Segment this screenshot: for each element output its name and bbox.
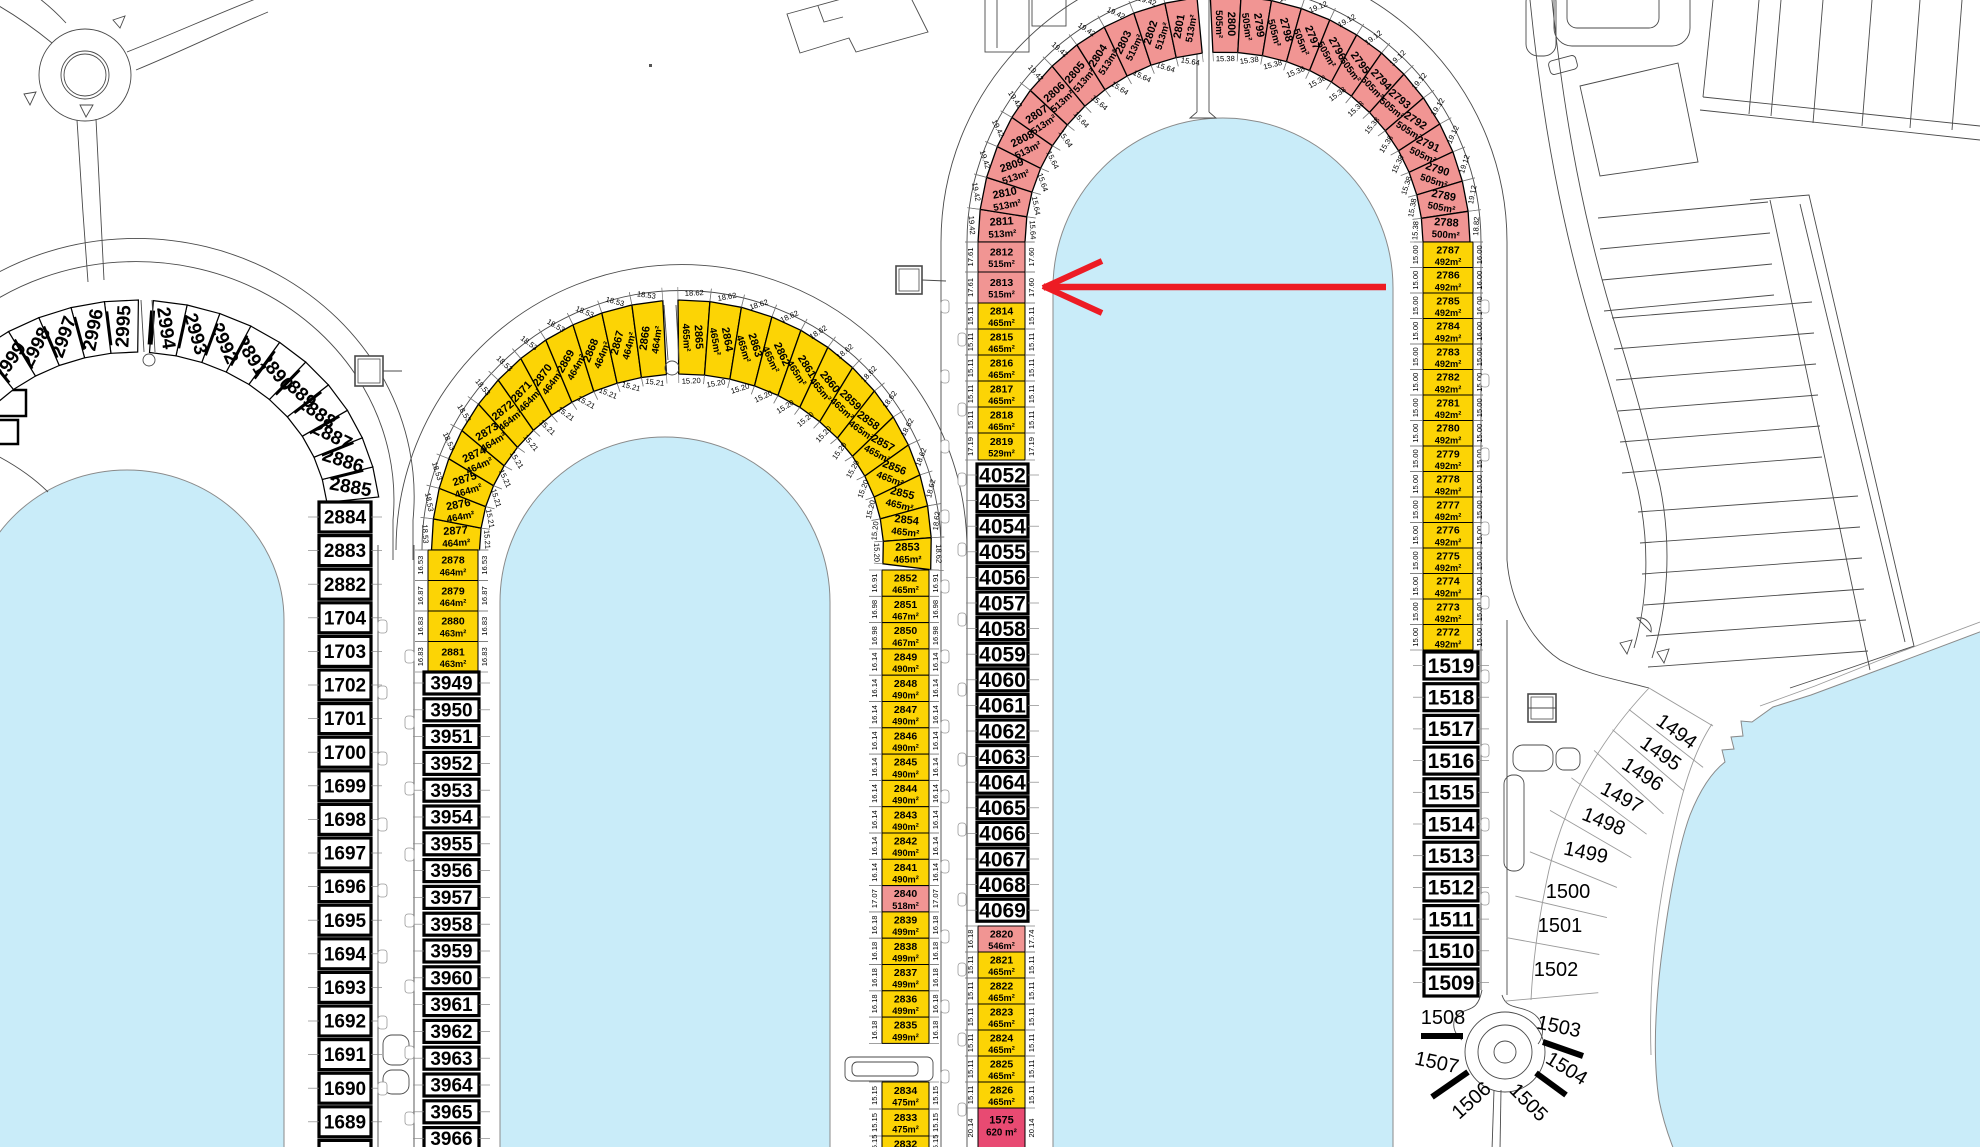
svg-text:492m²: 492m² <box>1435 282 1462 292</box>
svg-text:463m²: 463m² <box>440 659 467 669</box>
svg-text:467m²: 467m² <box>892 638 919 648</box>
svg-text:16.83: 16.83 <box>480 617 489 636</box>
svg-text:1575: 1575 <box>989 1115 1013 1127</box>
svg-text:1508: 1508 <box>1421 1007 1466 1029</box>
svg-text:3965: 3965 <box>430 1102 473 1123</box>
svg-text:463m²: 463m² <box>440 628 467 638</box>
svg-text:16.98: 16.98 <box>931 626 940 645</box>
svg-text:2774: 2774 <box>1436 576 1460 588</box>
svg-text:2842: 2842 <box>894 836 918 848</box>
svg-text:492m²: 492m² <box>1435 333 1462 343</box>
svg-text:15.00: 15.00 <box>1475 551 1484 570</box>
svg-text:2843: 2843 <box>894 809 918 821</box>
svg-text:15.11: 15.11 <box>966 1008 975 1026</box>
svg-text:4058: 4058 <box>979 618 1026 641</box>
svg-text:16.14: 16.14 <box>870 652 879 671</box>
svg-text:15.11: 15.11 <box>1027 333 1036 351</box>
svg-text:16.83: 16.83 <box>480 647 489 666</box>
svg-text:2832: 2832 <box>894 1139 918 1147</box>
svg-text:15.11: 15.11 <box>1027 411 1036 429</box>
svg-text:465m²: 465m² <box>988 370 1015 380</box>
svg-text:1704: 1704 <box>324 608 367 629</box>
svg-text:3956: 3956 <box>430 861 472 882</box>
svg-text:2865: 2865 <box>692 324 705 349</box>
svg-text:16.14: 16.14 <box>931 679 940 698</box>
svg-text:15.00: 15.00 <box>1411 373 1420 392</box>
svg-text:2880: 2880 <box>441 616 465 628</box>
svg-text:465m²: 465m² <box>892 585 919 595</box>
svg-text:490m²: 490m² <box>892 875 919 885</box>
svg-text:1695: 1695 <box>324 911 367 932</box>
svg-text:4057: 4057 <box>979 592 1026 615</box>
svg-text:15.00: 15.00 <box>1411 449 1420 468</box>
svg-text:513m²: 513m² <box>988 228 1017 241</box>
svg-text:15.15: 15.15 <box>870 1134 879 1147</box>
svg-text:2882: 2882 <box>324 575 366 596</box>
svg-text:16.14: 16.14 <box>931 705 940 724</box>
svg-text:3962: 3962 <box>430 1022 472 1043</box>
svg-text:2995: 2995 <box>112 304 135 348</box>
svg-text:16.18: 16.18 <box>870 942 879 961</box>
svg-text:16.14: 16.14 <box>931 837 940 856</box>
svg-text:15.11: 15.11 <box>966 956 975 974</box>
svg-text:2779: 2779 <box>1436 448 1460 460</box>
svg-text:16.18: 16.18 <box>870 968 879 987</box>
svg-text:15.00: 15.00 <box>1475 577 1484 596</box>
svg-text:2819: 2819 <box>990 436 1014 448</box>
svg-text:17.60: 17.60 <box>1027 247 1036 266</box>
svg-text:16.14: 16.14 <box>870 810 879 829</box>
svg-text:15.00: 15.00 <box>1475 398 1484 417</box>
svg-text:2788: 2788 <box>1434 216 1459 230</box>
svg-text:15.00: 15.00 <box>1411 347 1420 366</box>
svg-text:18.82: 18.82 <box>1471 216 1481 236</box>
svg-text:16.18: 16.18 <box>931 968 940 987</box>
svg-text:1512: 1512 <box>1428 877 1475 900</box>
svg-text:465m²: 465m² <box>988 1097 1015 1107</box>
svg-text:18.62: 18.62 <box>685 288 704 298</box>
svg-text:3966: 3966 <box>430 1129 472 1147</box>
svg-text:465m²: 465m² <box>988 396 1015 406</box>
svg-text:2821: 2821 <box>990 955 1014 967</box>
svg-text:2818: 2818 <box>990 410 1014 422</box>
svg-text:15.00: 15.00 <box>1411 628 1420 647</box>
svg-text:16.91: 16.91 <box>931 574 940 593</box>
svg-text:16.14: 16.14 <box>931 758 940 777</box>
svg-text:15.00: 15.00 <box>1411 296 1420 315</box>
svg-text:467m²: 467m² <box>892 612 919 622</box>
svg-text:464m²: 464m² <box>440 598 467 608</box>
svg-text:16.98: 16.98 <box>931 600 940 619</box>
svg-text:15.00: 15.00 <box>1475 500 1484 519</box>
svg-text:1515: 1515 <box>1428 782 1475 805</box>
svg-text:2836: 2836 <box>894 993 918 1005</box>
svg-text:490m²: 490m² <box>892 796 919 806</box>
svg-text:505m²: 505m² <box>1213 10 1224 39</box>
svg-text:2784: 2784 <box>1436 321 1460 333</box>
svg-text:2841: 2841 <box>894 862 918 874</box>
svg-text:16.98: 16.98 <box>870 626 879 645</box>
svg-text:2847: 2847 <box>894 704 918 716</box>
svg-text:2883: 2883 <box>324 541 366 562</box>
svg-text:1518: 1518 <box>1428 687 1475 710</box>
svg-text:16.18: 16.18 <box>870 915 879 934</box>
svg-text:17.60: 17.60 <box>1027 278 1036 297</box>
svg-text:1702: 1702 <box>324 676 366 697</box>
svg-text:16.14: 16.14 <box>931 810 940 829</box>
svg-text:4065: 4065 <box>979 797 1026 820</box>
svg-text:3958: 3958 <box>430 915 472 936</box>
svg-text:2823: 2823 <box>990 1007 1014 1019</box>
svg-text:15.00: 15.00 <box>1411 602 1420 621</box>
svg-text:499m²: 499m² <box>892 1006 919 1016</box>
svg-text:2777: 2777 <box>1436 499 1460 511</box>
svg-text:3955: 3955 <box>430 834 473 855</box>
svg-text:464m²: 464m² <box>440 567 467 577</box>
svg-text:2884: 2884 <box>324 508 367 529</box>
svg-text:2773: 2773 <box>1436 601 1460 613</box>
svg-text:490m²: 490m² <box>892 769 919 779</box>
svg-text:518m²: 518m² <box>892 901 919 911</box>
svg-text:2775: 2775 <box>1436 550 1460 562</box>
svg-text:17.19: 17.19 <box>966 437 975 456</box>
svg-text:15.00: 15.00 <box>1411 551 1420 570</box>
svg-text:16.53: 16.53 <box>416 556 425 575</box>
svg-text:465m²: 465m² <box>988 1045 1015 1055</box>
svg-text:546m²: 546m² <box>988 941 1015 951</box>
svg-text:2815: 2815 <box>990 332 1014 344</box>
svg-text:15.15: 15.15 <box>870 1086 879 1105</box>
svg-text:1511: 1511 <box>1428 908 1474 931</box>
svg-text:15.00: 15.00 <box>1411 577 1420 596</box>
svg-text:2851: 2851 <box>894 599 918 611</box>
svg-text:15.11: 15.11 <box>966 1034 975 1052</box>
svg-text:20.14: 20.14 <box>1027 1118 1036 1137</box>
svg-text:4052: 4052 <box>979 464 1026 487</box>
svg-text:465m²: 465m² <box>988 1071 1015 1081</box>
svg-text:465m²: 465m² <box>988 422 1015 432</box>
svg-text:499m²: 499m² <box>892 927 919 937</box>
svg-text:16.00: 16.00 <box>1475 322 1484 341</box>
svg-text:1701: 1701 <box>324 709 367 730</box>
svg-text:18.53: 18.53 <box>420 524 430 544</box>
svg-text:16.00: 16.00 <box>1475 245 1484 264</box>
svg-text:492m²: 492m² <box>1435 563 1462 573</box>
svg-text:15.11: 15.11 <box>1027 1008 1036 1026</box>
svg-text:490m²: 490m² <box>892 848 919 858</box>
svg-text:16.14: 16.14 <box>870 705 879 724</box>
svg-text:492m²: 492m² <box>1435 537 1462 547</box>
svg-text:1696: 1696 <box>324 877 366 898</box>
svg-text:492m²: 492m² <box>1435 639 1462 649</box>
svg-text:3959: 3959 <box>430 942 472 963</box>
svg-text:16.14: 16.14 <box>931 863 940 882</box>
svg-text:492m²: 492m² <box>1435 435 1462 445</box>
svg-text:1519: 1519 <box>1428 655 1475 678</box>
svg-text:2850: 2850 <box>894 625 918 637</box>
svg-text:3964: 3964 <box>430 1076 473 1097</box>
svg-text:3951: 3951 <box>430 727 473 748</box>
svg-text:2783: 2783 <box>1436 346 1460 358</box>
svg-text:2838: 2838 <box>894 941 918 953</box>
svg-text:17.61: 17.61 <box>966 278 975 297</box>
svg-text:15.11: 15.11 <box>966 359 975 377</box>
svg-text:15.00: 15.00 <box>1475 475 1484 494</box>
svg-text:1502: 1502 <box>1534 959 1579 981</box>
svg-text:2877: 2877 <box>443 524 468 538</box>
svg-text:16.91: 16.91 <box>870 574 879 593</box>
svg-text:465m²: 465m² <box>988 967 1015 977</box>
svg-text:3952: 3952 <box>430 754 472 775</box>
svg-text:15.11: 15.11 <box>966 982 975 1000</box>
svg-text:2879: 2879 <box>441 585 465 597</box>
svg-text:490m²: 490m² <box>892 743 919 753</box>
svg-text:2820: 2820 <box>990 929 1014 941</box>
svg-text:16.18: 16.18 <box>870 1021 879 1040</box>
svg-text:1516: 1516 <box>1428 750 1475 773</box>
svg-text:2811: 2811 <box>989 215 1014 229</box>
svg-text:1514: 1514 <box>1428 813 1475 836</box>
svg-text:15.21: 15.21 <box>482 530 492 550</box>
svg-text:15.15: 15.15 <box>931 1113 940 1132</box>
svg-text:4066: 4066 <box>979 823 1026 846</box>
svg-text:1698: 1698 <box>324 810 366 831</box>
svg-text:492m²: 492m² <box>1435 588 1462 598</box>
svg-text:475m²: 475m² <box>892 1098 919 1108</box>
svg-text:2822: 2822 <box>990 981 1014 993</box>
svg-text:499m²: 499m² <box>892 980 919 990</box>
svg-text:1699: 1699 <box>324 776 366 797</box>
svg-text:2812: 2812 <box>990 247 1014 259</box>
svg-text:15.11: 15.11 <box>1027 385 1036 403</box>
svg-text:15.15: 15.15 <box>931 1134 940 1147</box>
svg-text:2785: 2785 <box>1436 295 1460 307</box>
svg-text:2844: 2844 <box>894 783 918 795</box>
svg-text:515m²: 515m² <box>988 259 1015 269</box>
svg-text:15.00: 15.00 <box>1411 500 1420 519</box>
svg-text:16.53: 16.53 <box>480 556 489 575</box>
svg-text:492m²: 492m² <box>1435 512 1462 522</box>
svg-text:2780: 2780 <box>1436 423 1460 435</box>
svg-text:3957: 3957 <box>430 888 472 909</box>
svg-text:16.18: 16.18 <box>931 942 940 961</box>
svg-text:16.87: 16.87 <box>416 586 425 605</box>
svg-text:15.00: 15.00 <box>1411 271 1420 290</box>
svg-text:17.07: 17.07 <box>870 889 879 908</box>
svg-text:1513: 1513 <box>1428 845 1475 868</box>
svg-text:16.98: 16.98 <box>870 600 879 619</box>
svg-text:15.00: 15.00 <box>1411 424 1420 443</box>
svg-text:529m²: 529m² <box>988 449 1015 459</box>
svg-text:490m²: 490m² <box>892 664 919 674</box>
svg-text:1500: 1500 <box>1546 881 1591 903</box>
svg-text:16.14: 16.14 <box>931 784 940 803</box>
svg-text:16.14: 16.14 <box>931 731 940 750</box>
svg-text:16.14: 16.14 <box>870 784 879 803</box>
svg-text:18.62: 18.62 <box>934 544 943 563</box>
svg-text:492m²: 492m² <box>1435 461 1462 471</box>
svg-text:1510: 1510 <box>1428 940 1475 963</box>
svg-text:15.00: 15.00 <box>1475 424 1484 443</box>
svg-text:15.11: 15.11 <box>1027 956 1036 974</box>
svg-text:4055: 4055 <box>979 541 1026 564</box>
svg-text:2772: 2772 <box>1436 627 1460 639</box>
svg-text:492m²: 492m² <box>1435 257 1462 267</box>
svg-text:20.14: 20.14 <box>966 1118 975 1137</box>
svg-text:492m²: 492m² <box>1435 614 1462 624</box>
svg-text:2814: 2814 <box>990 306 1014 318</box>
svg-text:4068: 4068 <box>979 874 1026 897</box>
svg-text:15.38: 15.38 <box>1410 221 1420 241</box>
svg-text:19.42: 19.42 <box>967 215 977 235</box>
svg-text:4061: 4061 <box>979 695 1026 718</box>
svg-text:492m²: 492m² <box>1435 359 1462 369</box>
svg-text:15.11: 15.11 <box>1027 1086 1036 1104</box>
svg-text:2837: 2837 <box>894 967 918 979</box>
svg-text:2800: 2800 <box>1225 12 1237 37</box>
svg-text:15.00: 15.00 <box>1411 245 1420 264</box>
svg-text:2845: 2845 <box>894 757 918 769</box>
svg-text:2817: 2817 <box>990 384 1014 396</box>
svg-text:465m²: 465m² <box>988 993 1015 1003</box>
svg-text:2826: 2826 <box>990 1085 1014 1097</box>
svg-text:2781: 2781 <box>1436 397 1460 409</box>
svg-text:1692: 1692 <box>324 1012 366 1033</box>
svg-text:15.11: 15.11 <box>1027 1034 1036 1052</box>
svg-text:2816: 2816 <box>990 358 1014 370</box>
svg-text:492m²: 492m² <box>1435 384 1462 394</box>
svg-text:15.15: 15.15 <box>870 1113 879 1132</box>
svg-text:16.83: 16.83 <box>416 647 425 666</box>
svg-text:17.07: 17.07 <box>931 889 940 908</box>
svg-text:4053: 4053 <box>979 490 1026 513</box>
svg-text:475m²: 475m² <box>892 1125 919 1135</box>
svg-text:15.11: 15.11 <box>1027 1060 1036 1078</box>
svg-text:15.11: 15.11 <box>966 385 975 403</box>
svg-text:4062: 4062 <box>979 720 1026 743</box>
svg-text:3960: 3960 <box>430 968 472 989</box>
svg-text:2776: 2776 <box>1436 525 1460 537</box>
svg-text:15.00: 15.00 <box>1411 398 1420 417</box>
svg-text:620 m²: 620 m² <box>986 1128 1017 1139</box>
svg-text:2834: 2834 <box>894 1085 918 1097</box>
svg-text:4059: 4059 <box>979 644 1026 667</box>
svg-text:1509: 1509 <box>1428 972 1475 995</box>
svg-text:15.11: 15.11 <box>966 411 975 429</box>
svg-text:465m²: 465m² <box>894 554 923 565</box>
svg-text:4056: 4056 <box>979 567 1026 590</box>
svg-text:4067: 4067 <box>979 848 1026 871</box>
svg-text:15.00: 15.00 <box>1475 347 1484 366</box>
svg-text:1703: 1703 <box>324 642 366 663</box>
svg-text:2848: 2848 <box>894 678 918 690</box>
svg-text:2853: 2853 <box>895 541 920 553</box>
svg-text:16.18: 16.18 <box>931 915 940 934</box>
svg-text:15.11: 15.11 <box>1027 307 1036 325</box>
svg-text:2881: 2881 <box>441 646 465 658</box>
svg-text:2835: 2835 <box>894 1020 918 1032</box>
svg-text:1691: 1691 <box>324 1045 367 1066</box>
svg-text:490m²: 490m² <box>892 690 919 700</box>
svg-text:16.18: 16.18 <box>870 994 879 1013</box>
svg-text:492m²: 492m² <box>1435 410 1462 420</box>
svg-text:2782: 2782 <box>1436 372 1460 384</box>
svg-text:16.18: 16.18 <box>966 929 975 948</box>
svg-text:16.14: 16.14 <box>870 679 879 698</box>
svg-text:1694: 1694 <box>324 944 367 965</box>
svg-text:2833: 2833 <box>894 1112 918 1124</box>
svg-text:2878: 2878 <box>441 555 465 567</box>
svg-text:15.11: 15.11 <box>966 1060 975 1078</box>
svg-text:15.00: 15.00 <box>1411 526 1420 545</box>
svg-text:3953: 3953 <box>430 781 472 802</box>
svg-text:515m²: 515m² <box>988 290 1015 300</box>
svg-text:2786: 2786 <box>1436 270 1460 282</box>
svg-text:2787: 2787 <box>1436 244 1460 256</box>
svg-text:15.11: 15.11 <box>1027 359 1036 377</box>
svg-text:1690: 1690 <box>324 1079 366 1100</box>
svg-text:2852: 2852 <box>894 573 918 585</box>
svg-text:2846: 2846 <box>894 730 918 742</box>
svg-text:4064: 4064 <box>979 772 1026 795</box>
svg-text:15.11: 15.11 <box>966 1086 975 1104</box>
svg-text:16.14: 16.14 <box>870 863 879 882</box>
svg-text:15.00: 15.00 <box>1411 322 1420 341</box>
svg-text:3961: 3961 <box>430 995 473 1016</box>
svg-text:15.11: 15.11 <box>966 333 975 351</box>
svg-text:465m²: 465m² <box>988 344 1015 354</box>
svg-text:499m²: 499m² <box>892 1032 919 1042</box>
svg-text:1697: 1697 <box>324 844 366 865</box>
svg-text:4060: 4060 <box>979 669 1026 692</box>
svg-text:16.18: 16.18 <box>931 994 940 1013</box>
svg-text:15.38: 15.38 <box>1216 54 1235 63</box>
svg-text:16.14: 16.14 <box>931 652 940 671</box>
svg-text:2778: 2778 <box>1436 474 1460 486</box>
svg-text:1517: 1517 <box>1428 718 1475 741</box>
svg-text:16.87: 16.87 <box>480 586 489 605</box>
svg-text:3963: 3963 <box>430 1049 472 1070</box>
svg-text:17.19: 17.19 <box>1027 437 1036 456</box>
svg-text:490m²: 490m² <box>892 717 919 727</box>
svg-text:17.74: 17.74 <box>1027 929 1036 948</box>
svg-text:16.14: 16.14 <box>870 837 879 856</box>
svg-text:2824: 2824 <box>990 1033 1014 1045</box>
svg-text:2849: 2849 <box>894 652 918 664</box>
svg-text:3950: 3950 <box>430 700 472 721</box>
svg-text:499m²: 499m² <box>892 953 919 963</box>
svg-text:465m²: 465m² <box>680 323 692 352</box>
svg-text:2813: 2813 <box>990 277 1014 289</box>
svg-text:492m²: 492m² <box>1435 486 1462 496</box>
svg-text:464m²: 464m² <box>442 537 471 550</box>
svg-text:1689: 1689 <box>324 1112 366 1133</box>
svg-text:3954: 3954 <box>430 808 473 829</box>
svg-text:2839: 2839 <box>894 915 918 927</box>
svg-text:16.00: 16.00 <box>1475 271 1484 290</box>
svg-text:1700: 1700 <box>324 743 366 764</box>
svg-text:2825: 2825 <box>990 1059 1014 1071</box>
svg-text:15.20: 15.20 <box>681 376 700 386</box>
svg-text:1501: 1501 <box>1538 915 1583 937</box>
svg-text:15.15: 15.15 <box>931 1086 940 1105</box>
svg-text:17.61: 17.61 <box>966 247 975 266</box>
svg-text:3949: 3949 <box>430 674 472 695</box>
svg-text:15.00: 15.00 <box>1475 628 1484 647</box>
svg-text:1693: 1693 <box>324 978 366 999</box>
svg-text:2840: 2840 <box>894 888 918 900</box>
svg-text:15.20: 15.20 <box>872 543 881 562</box>
